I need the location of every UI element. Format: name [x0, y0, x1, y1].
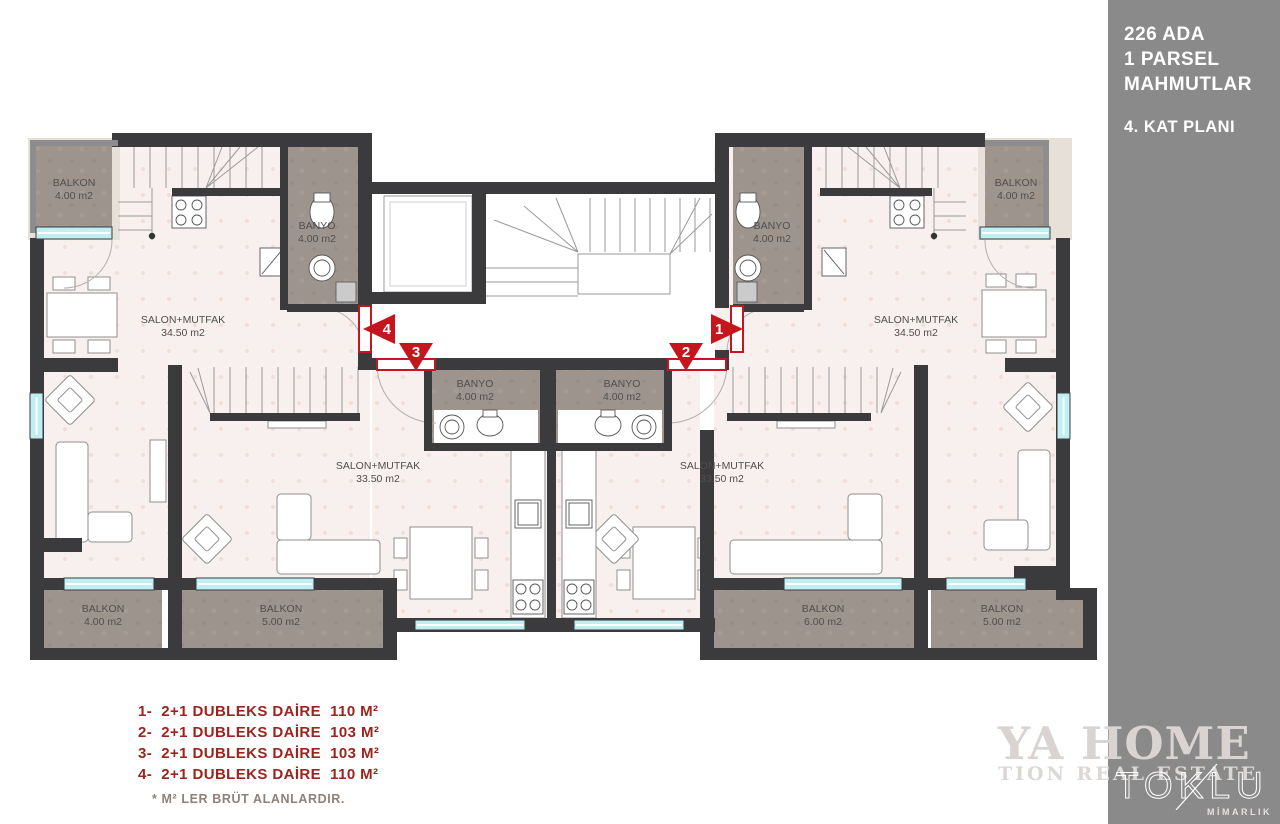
room-label-balkon-b2: BALKON5.00 m2	[260, 603, 303, 629]
room-label-banyo-u3: BANYO4.00 m2	[456, 378, 494, 404]
screenshot-root: BALKON4.00 m2 BALKON4.00 m2 BANYO4.00 m2…	[0, 0, 1280, 824]
legend-item: 3- 2+1 DUBLEKS DAİRE 103 M²	[138, 743, 379, 764]
room-label-banyo-u2: BANYO4.00 m2	[603, 378, 641, 404]
project-title-line2: 1 PARSEL	[1124, 47, 1272, 72]
room-label-salon-u2: SALON+MUTFAK33.50 m2	[680, 460, 764, 486]
room-label-salon-u4: SALON+MUTFAK34.50 m2	[141, 314, 225, 340]
project-title: 226 ADA 1 PARSEL MAHMUTLAR	[1108, 0, 1280, 97]
legend-note: * M² LER BRÜT ALANLARDIR.	[152, 792, 379, 806]
toklu-logo: TOKLU MİMARLIK	[1114, 764, 1274, 817]
legend-item: 2- 2+1 DUBLEKS DAİRE 103 M²	[138, 722, 379, 743]
svg-text:TOKLU: TOKLU	[1116, 765, 1269, 806]
room-label-salon-u3: SALON+MUTFAK33.50 m2	[336, 460, 420, 486]
room-label-banyo-u4: BANYO4.00 m2	[298, 220, 336, 246]
room-label-banyo-u1: BANYO4.00 m2	[753, 220, 791, 246]
room-label-balkon-b4: BALKON5.00 m2	[981, 603, 1024, 629]
room-label-balkon-b1: BALKON4.00 m2	[82, 603, 125, 629]
project-title-line3: MAHMUTLAR	[1124, 72, 1272, 97]
room-label-balkon-tr: BALKON4.00 m2	[995, 177, 1038, 203]
legend-item: 1- 2+1 DUBLEKS DAİRE 110 M²	[138, 701, 379, 722]
legend: 1- 2+1 DUBLEKS DAİRE 110 M² 2- 2+1 DUBLE…	[138, 701, 379, 806]
room-label-salon-u1: SALON+MUTFAK34.50 m2	[874, 314, 958, 340]
room-label-balkon-tl: BALKON4.00 m2	[53, 177, 96, 203]
floor-label: 4. KAT PLANI	[1108, 97, 1280, 137]
toklu-logo-glyph: TOKLU	[1114, 764, 1274, 810]
room-label-balkon-b3: BALKON6.00 m2	[802, 603, 845, 629]
project-title-line1: 226 ADA	[1124, 22, 1272, 47]
elevator-shaft	[384, 196, 472, 292]
sidebar: 226 ADA 1 PARSEL MAHMUTLAR 4. KAT PLANI	[1108, 0, 1280, 824]
legend-item: 4- 2+1 DUBLEKS DAİRE 110 M²	[138, 764, 379, 785]
floor-plan: BALKON4.00 m2 BALKON4.00 m2 BANYO4.00 m2…	[0, 0, 1107, 824]
